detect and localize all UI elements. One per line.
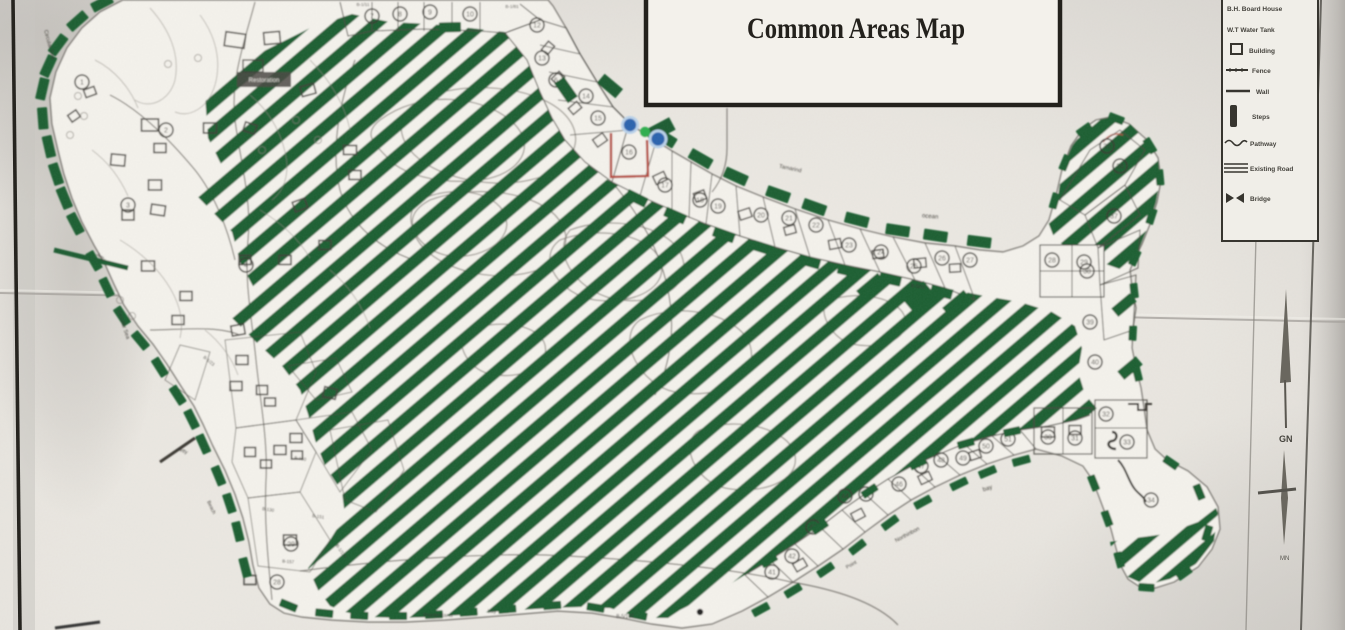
- svg-text:42: 42: [788, 554, 796, 561]
- svg-text:50: 50: [982, 444, 990, 451]
- svg-text:30: 30: [1044, 435, 1052, 442]
- svg-text:37: 37: [1110, 214, 1118, 221]
- svg-text:W.T Water Tank: W.T Water Tank: [1227, 27, 1275, 34]
- svg-text:21: 21: [785, 216, 793, 223]
- svg-text:Pointeotana: Pointeotana: [423, 613, 453, 619]
- svg-text:17: 17: [661, 183, 669, 190]
- svg-text:24: 24: [877, 250, 885, 257]
- svg-text:26: 26: [938, 256, 946, 263]
- svg-text:39: 39: [1086, 320, 1094, 327]
- svg-text:23: 23: [845, 243, 853, 250]
- svg-text:41: 41: [768, 570, 776, 577]
- svg-text:2: 2: [164, 128, 168, 135]
- svg-text:33: 33: [1123, 440, 1131, 447]
- svg-text:B-1/11: B-1/11: [357, 2, 370, 7]
- svg-text:8: 8: [398, 12, 402, 19]
- svg-text:32: 32: [1102, 412, 1110, 419]
- svg-text:Pathway: Pathway: [1250, 141, 1277, 148]
- svg-text:GN: GN: [1279, 434, 1293, 444]
- svg-text:13: 13: [538, 56, 546, 63]
- svg-text:Bridge: Bridge: [1250, 196, 1271, 203]
- svg-text:20: 20: [757, 213, 765, 220]
- svg-text:12: 12: [533, 23, 541, 30]
- svg-text:18: 18: [696, 198, 704, 205]
- svg-text:29: 29: [1080, 260, 1088, 267]
- svg-text:Restoration: Restoration: [249, 78, 280, 84]
- svg-text:46: 46: [895, 482, 903, 489]
- svg-text:48: 48: [937, 458, 945, 465]
- svg-text:B-5/102: B-5/102: [616, 614, 634, 620]
- svg-text:10: 10: [466, 12, 474, 19]
- svg-text:40: 40: [1091, 360, 1099, 367]
- svg-text:Building: Building: [1249, 48, 1275, 55]
- svg-text:25: 25: [910, 264, 918, 271]
- svg-text:14: 14: [582, 94, 590, 101]
- svg-text:16: 16: [625, 150, 633, 157]
- svg-text:9: 9: [428, 10, 432, 17]
- svg-text:38: 38: [1083, 269, 1091, 276]
- svg-text:49: 49: [959, 456, 967, 463]
- svg-text:4: 4: [244, 263, 248, 270]
- svg-text:28: 28: [273, 580, 281, 587]
- svg-text:28: 28: [1048, 258, 1056, 265]
- svg-text:27: 27: [966, 258, 974, 265]
- svg-text:Existing Road: Existing Road: [1250, 166, 1293, 173]
- svg-text:7: 7: [370, 14, 374, 21]
- svg-text:3: 3: [126, 203, 130, 210]
- svg-text:35: 35: [1103, 144, 1111, 151]
- svg-text:Fence: Fence: [1252, 68, 1271, 75]
- svg-text:29: 29: [287, 542, 295, 549]
- svg-text:MN: MN: [1280, 556, 1289, 562]
- svg-text:22: 22: [812, 223, 820, 230]
- svg-text:31: 31: [1071, 436, 1079, 443]
- svg-text:1: 1: [80, 80, 84, 87]
- svg-text:Wall: Wall: [1256, 89, 1269, 96]
- svg-text:34: 34: [1147, 498, 1155, 505]
- svg-text:Steps: Steps: [1252, 114, 1270, 121]
- svg-text:B-1/81: B-1/81: [505, 4, 519, 9]
- svg-text:Common Areas Map: Common Areas Map: [747, 12, 965, 45]
- svg-text:36: 36: [1116, 164, 1124, 171]
- svg-text:bay: bay: [488, 609, 497, 615]
- svg-text:B.H. Board House: B.H. Board House: [1227, 6, 1283, 13]
- svg-text:19: 19: [714, 204, 722, 211]
- svg-text:44: 44: [841, 494, 849, 501]
- svg-text:15: 15: [594, 116, 602, 123]
- svg-text:51: 51: [1004, 437, 1012, 444]
